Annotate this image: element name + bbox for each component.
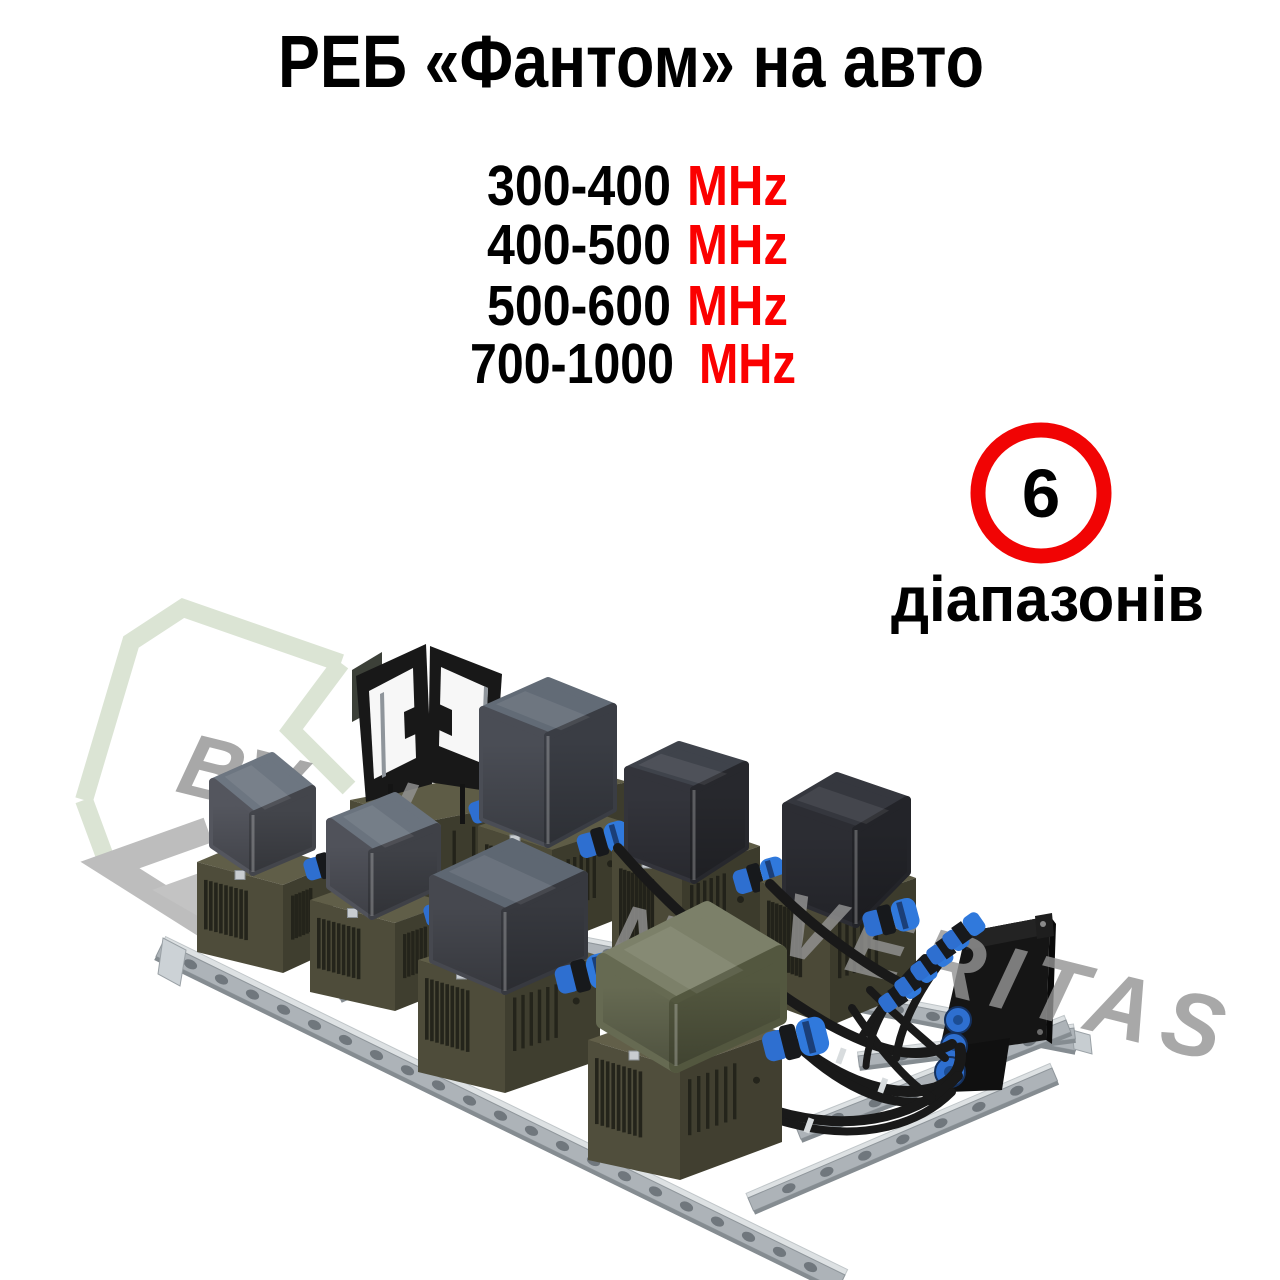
svg-text:300-400: 300-400	[487, 154, 671, 218]
svg-text:MHz: MHz	[687, 213, 788, 277]
svg-text:500-600: 500-600	[487, 274, 671, 338]
svg-text:діапазонів: діапазонів	[891, 563, 1204, 635]
svg-text:MHz: MHz	[699, 332, 796, 396]
svg-text:MHz: MHz	[687, 154, 788, 218]
svg-text:6: 6	[1022, 455, 1060, 532]
svg-text:РЕБ «Фантом» на авто: РЕБ «Фантом» на авто	[278, 20, 984, 103]
svg-text:400-500: 400-500	[487, 213, 671, 277]
svg-text:700-1000: 700-1000	[470, 332, 674, 396]
svg-text:MHz: MHz	[687, 274, 788, 338]
